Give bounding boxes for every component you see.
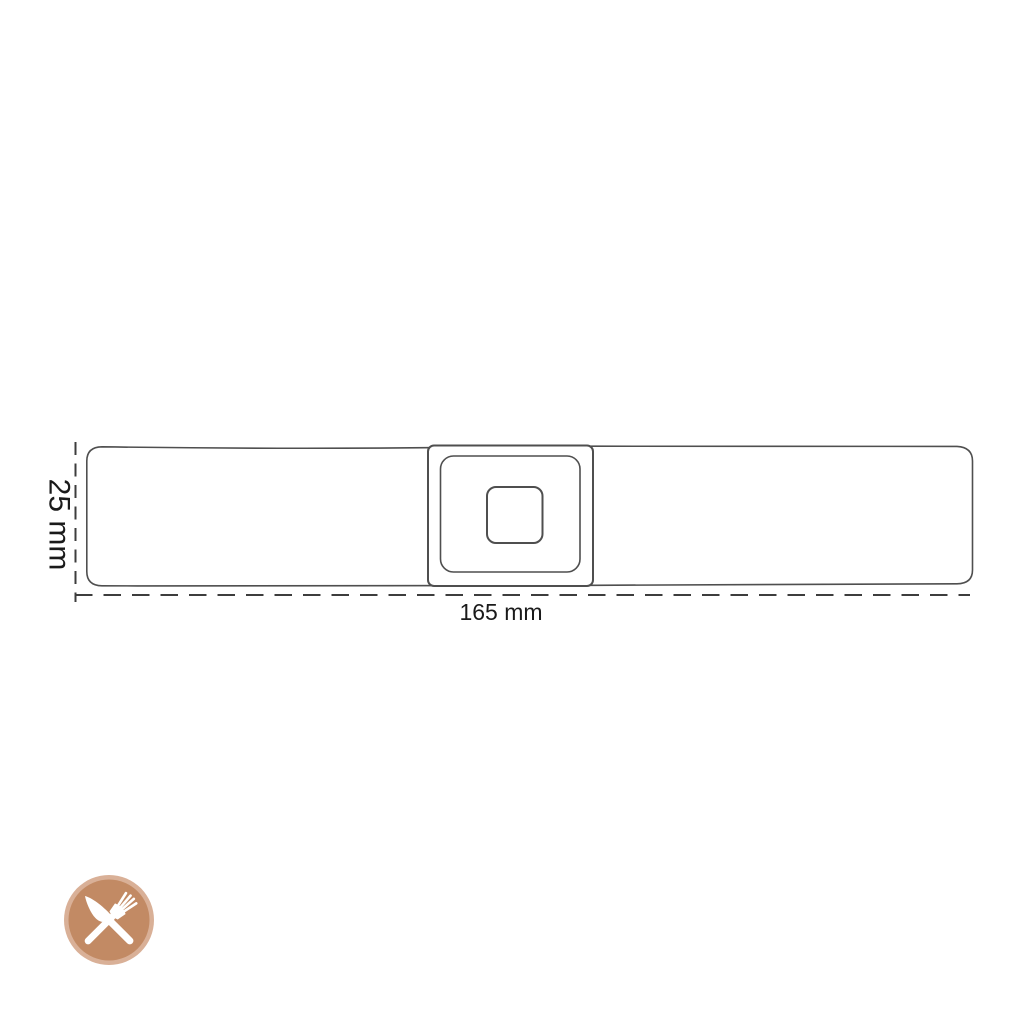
product-dimension-image: 25 mm 165 mm xyxy=(0,0,1024,1024)
clip-center-square xyxy=(487,487,543,543)
brand-logo-badge xyxy=(63,874,155,966)
dimension-diagram xyxy=(0,0,1024,1024)
cutlery-logo-icon xyxy=(63,874,155,966)
height-dimension-label: 25 mm xyxy=(44,445,75,605)
width-dimension-label: 165 mm xyxy=(416,597,586,627)
